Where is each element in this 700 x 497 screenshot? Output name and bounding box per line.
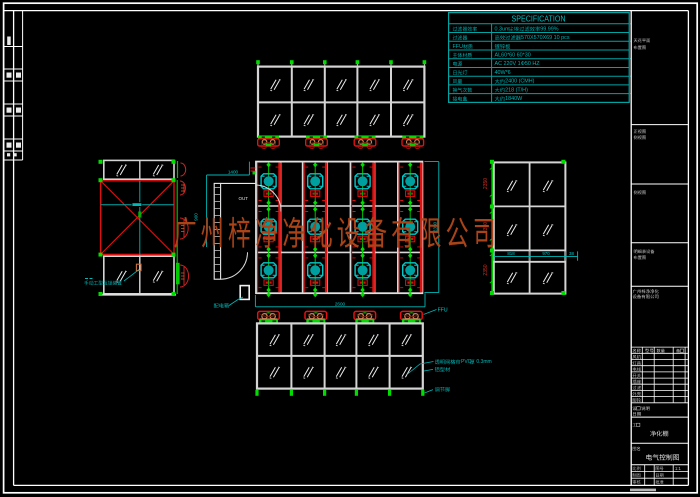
svg-text:40W*6: 40W*6 [495,70,511,76]
svg-text:818: 818 [507,251,515,256]
svg-text:2600: 2600 [335,301,346,306]
svg-text:970: 970 [542,251,550,256]
svg-text:PVC: PVC [461,359,472,365]
svg-text:900: 900 [194,213,199,221]
svg-text:0.3mm: 0.3mm [476,359,491,365]
svg-text:1400: 1400 [228,170,239,175]
svg-text:FFU: FFU [453,44,464,50]
svg-text:0.3um: 0.3um [495,26,510,32]
svg-text:1:1: 1:1 [675,466,681,471]
svg-text:2400 (CMH): 2400 (CMH) [505,79,535,85]
svg-text:OUT: OUT [239,196,249,201]
svg-text:218 (T/H): 218 (T/H) [505,87,528,93]
svg-text:FFU: FFU [438,307,448,313]
svg-text:2350: 2350 [483,178,489,189]
svg-text:1840W: 1840W [505,96,523,102]
svg-text:570X570X69 10 pcs: 570X570X69 10 pcs [521,35,570,41]
svg-text:2350: 2350 [433,221,438,232]
svg-text:AC 220V 1Φ50 HZ: AC 220V 1Φ50 HZ [495,61,541,67]
svg-text:38: 38 [569,251,574,256]
svg-text:2350: 2350 [483,264,489,275]
svg-text:99.99%: 99.99% [540,26,558,32]
svg-text:SPECIFICATION: SPECIFICATION [512,13,566,23]
svg-text:AL60*60 60*30: AL60*60 60*30 [495,52,531,58]
